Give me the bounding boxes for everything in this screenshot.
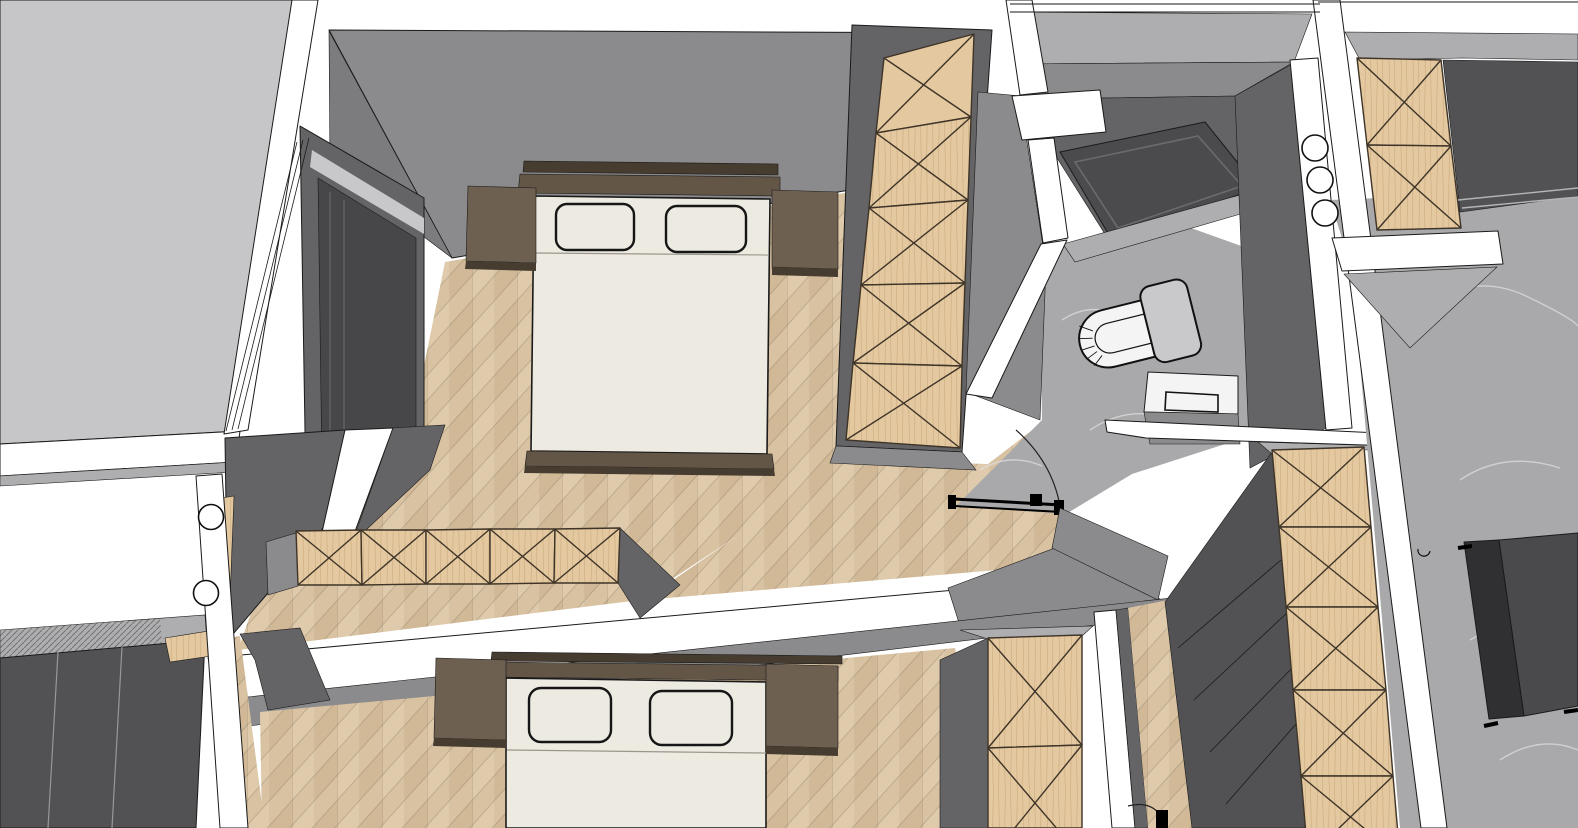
seat-leg xyxy=(1564,710,1578,712)
sliding-doors-dark xyxy=(0,640,205,828)
seat-leg xyxy=(1458,546,1472,548)
door-handle xyxy=(1030,494,1042,506)
door-hinge xyxy=(1156,810,1168,828)
3d-floorplan-canvas[interactable] xyxy=(0,0,1578,828)
wardrobe-section xyxy=(988,745,1082,828)
column-circle xyxy=(199,505,224,530)
column-circle xyxy=(1307,167,1333,193)
headboard xyxy=(518,174,780,196)
bathroom-north-wall-top xyxy=(1008,12,1312,64)
wall-cut-bathroom-jut xyxy=(1012,90,1106,140)
render-stage xyxy=(0,0,1578,828)
nightstand-right xyxy=(772,190,838,269)
nightstand-left xyxy=(466,186,536,263)
wall-cut-living-t xyxy=(1332,231,1503,271)
pillow-left xyxy=(556,204,634,250)
pillow-left xyxy=(529,688,611,742)
column-circle xyxy=(1302,135,1328,161)
column-circle xyxy=(194,581,219,606)
living-north-wall-top xyxy=(1345,32,1578,60)
pillow-right xyxy=(666,206,746,252)
second-bedroom-wardrobe xyxy=(940,626,1093,828)
nightstand-right xyxy=(766,664,838,748)
sideboard-left-side xyxy=(266,533,298,595)
living-dark-unit xyxy=(1443,60,1578,212)
door-jamb-left xyxy=(948,495,956,509)
column-circle xyxy=(1312,200,1338,226)
pillow-right xyxy=(650,691,732,745)
wardrobe-side xyxy=(940,638,988,828)
footboard xyxy=(525,451,774,469)
nightstand-left xyxy=(434,658,506,740)
